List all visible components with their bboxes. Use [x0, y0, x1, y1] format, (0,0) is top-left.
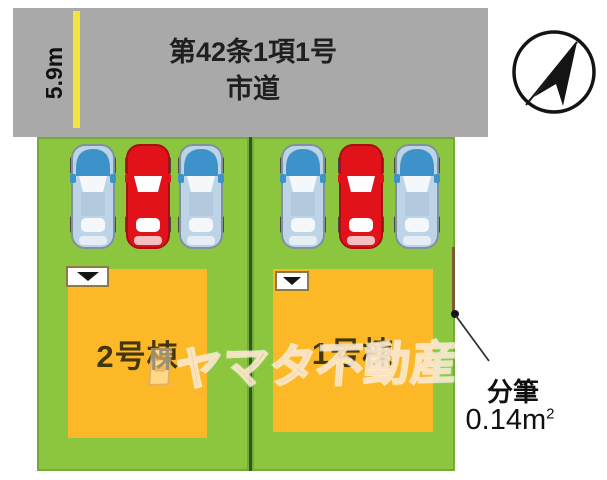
- car-icon: [178, 144, 224, 249]
- entrance-arrow-icon: [283, 277, 301, 285]
- building-2: 2号棟: [68, 269, 207, 438]
- area-number: 0.14m: [466, 404, 547, 436]
- building-1-label: 1号棟: [312, 328, 394, 373]
- road-width-measure-line: [73, 11, 80, 128]
- site-plan-diagram: 第42条1項1号 市道 5.9m 2号棟 1号棟 分筆 0.14: [0, 0, 607, 480]
- area-superscript: 2: [546, 405, 554, 422]
- plot-divider-line: [249, 137, 252, 471]
- road-label: 第42条1項1号 市道: [108, 34, 398, 108]
- car-icon: [338, 144, 384, 249]
- building-2-label: 2号棟: [96, 331, 178, 376]
- road-regulation-text: 第42条1項1号: [108, 34, 398, 71]
- car-icon: [394, 144, 440, 249]
- building-1: 1号棟: [273, 269, 433, 432]
- entrance-marker-building-2: [66, 266, 109, 287]
- road-area: 第42条1項1号 市道 5.9m: [13, 8, 488, 137]
- car-icon: [70, 144, 116, 249]
- car-icon: [280, 144, 326, 249]
- subdivision-area-value: 0.14m2: [450, 404, 570, 437]
- road-type-text: 市道: [108, 71, 398, 108]
- entrance-marker-building-1: [275, 271, 309, 291]
- north-compass-icon: [511, 29, 597, 115]
- road-width-label: 5.9m: [41, 42, 67, 104]
- car-icon: [125, 144, 171, 249]
- subdivision-leader-line: [447, 305, 507, 367]
- entrance-arrow-icon: [77, 272, 99, 281]
- subdivision-boundary-line: [452, 247, 455, 314]
